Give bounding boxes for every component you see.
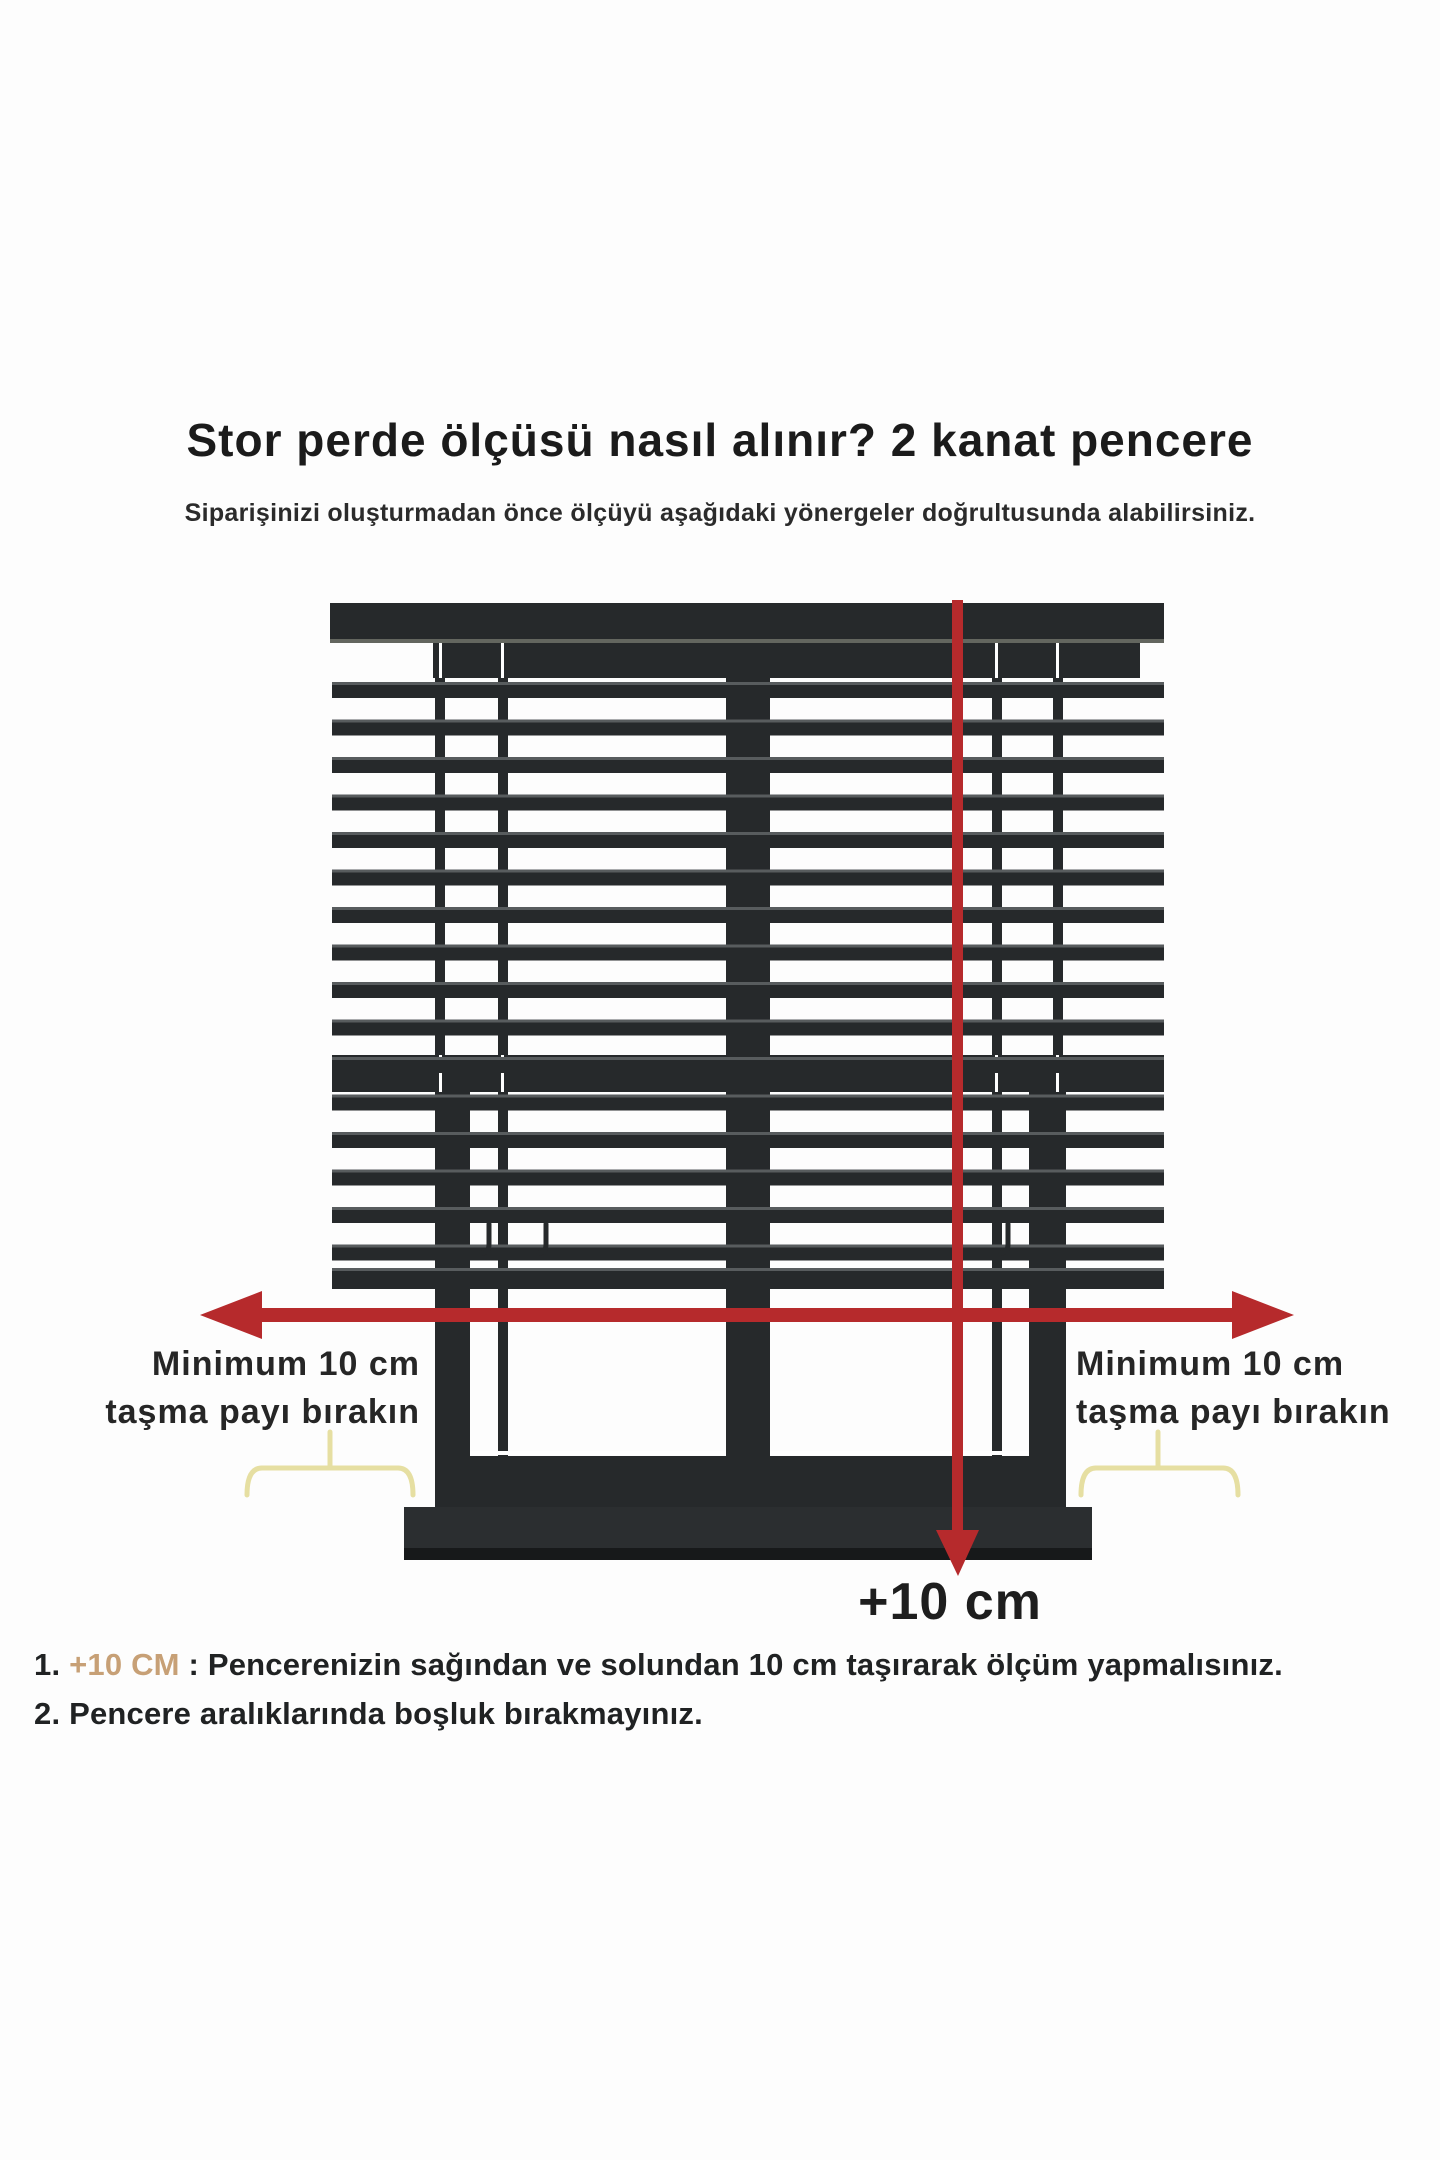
blind-headrail (330, 603, 1164, 643)
right-margin-label: Minimum 10 cm taşma payı bırakın (1076, 1340, 1436, 1436)
window-frame (332, 605, 1164, 1560)
instruction-highlight: +10 CM (69, 1647, 180, 1682)
left-margin-label-line1: Minimum 10 cm (60, 1340, 420, 1388)
instructions: 1. +10 CM : Pencerenizin sağından ve sol… (34, 1640, 1424, 1738)
right-margin-brace (1081, 1432, 1238, 1495)
stage: Stor perde ölçüsü nasıl alınır? 2 kanat … (0, 0, 1440, 2160)
measurement-guide-page: { "page": { "background": "#fdfdfd" }, "… (0, 0, 1440, 2160)
left-margin-brace (247, 1432, 413, 1495)
instruction-text: Pencere aralıklarında boşluk bırakmayını… (69, 1696, 703, 1731)
left-margin-label-line2: taşma payı bırakın (60, 1388, 420, 1436)
left-margin-label: Minimum 10 cm taşma payı bırakın (60, 1340, 420, 1436)
bottom-measure-label: +10 cm (800, 1572, 1100, 1632)
right-margin-label-line2: taşma payı bırakın (1076, 1388, 1436, 1436)
right-margin-label-line1: Minimum 10 cm (1076, 1340, 1436, 1388)
instruction-number: 2. (34, 1696, 69, 1731)
instruction-text: Pencerenizin sağından ve solundan 10 cm … (208, 1647, 1283, 1682)
window-blind-diagram (0, 0, 1440, 2160)
instruction-separator: : (180, 1647, 208, 1682)
instruction-number: 1. (34, 1647, 69, 1682)
instruction-item: 1. +10 CM : Pencerenizin sağından ve sol… (34, 1640, 1424, 1689)
window-sill (404, 1507, 1092, 1548)
instruction-item: 2. Pencere aralıklarında boşluk bırakmay… (34, 1689, 1424, 1738)
